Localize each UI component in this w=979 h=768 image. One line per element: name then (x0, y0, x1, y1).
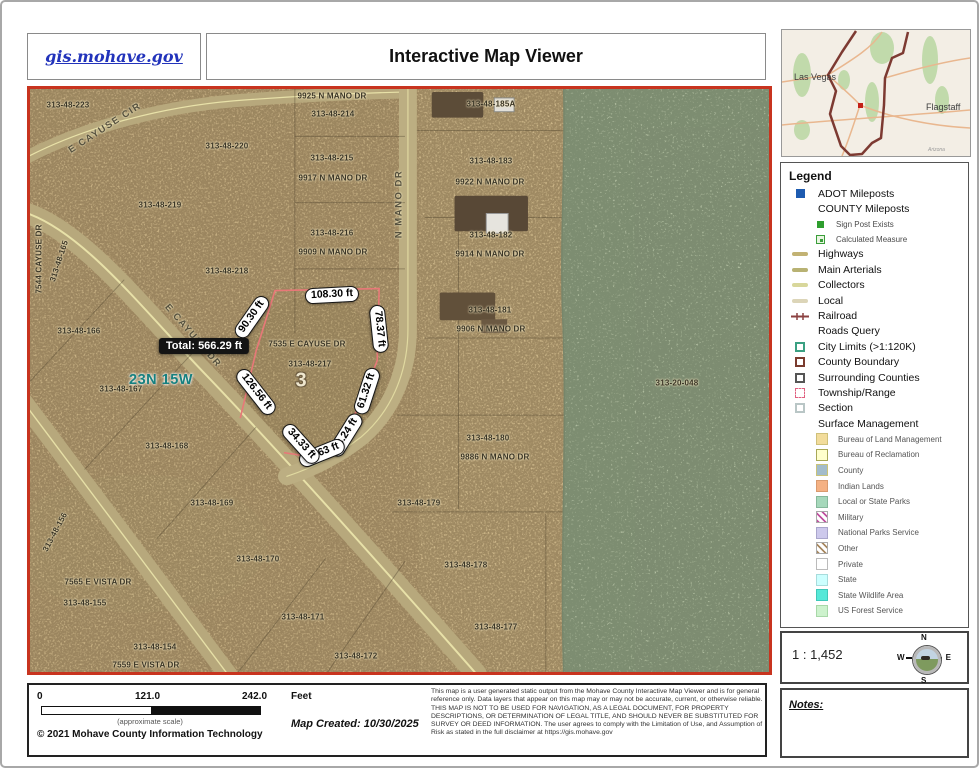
legend-item: ADOT Mileposts (787, 186, 962, 201)
parcel-label: 313-48-220 (206, 142, 249, 151)
parcel-label: 313-48-165 (48, 239, 70, 283)
parcel-label: 9914 N MANO DR (455, 250, 524, 259)
parcel-label: 313-48-177 (475, 623, 518, 632)
swatch-icon (813, 433, 831, 445)
legend-item-label: National Parks Service (838, 528, 919, 537)
square-icon (791, 189, 809, 198)
rail-icon (791, 312, 809, 321)
legend-item: US Forest Service (787, 603, 962, 619)
legend-item: Calculated Measure (787, 232, 962, 247)
parcel-label: 313-48-223 (47, 101, 90, 110)
swatch-icon (813, 589, 831, 601)
legend-item: National Parks Service (787, 525, 962, 541)
parcel-label: 313-48-219 (139, 201, 182, 210)
legend-item: Bureau of Reclamation (787, 447, 962, 463)
site-link[interactable]: gis.mohave.gov (45, 47, 183, 66)
measure-segment-label: 126.56 ft (233, 366, 279, 418)
legend-item-label: ADOT Mileposts (818, 188, 894, 200)
legend-item-label: COUNTY Mileposts (818, 203, 909, 215)
scale-ratio: 1 : 1,452 (792, 647, 843, 662)
legend-items: ADOT MilepostsCOUNTY MilepostsSign Post … (787, 186, 962, 619)
parcel-label: 313-48-183 (470, 157, 513, 166)
legend-item: Highways (787, 247, 962, 262)
parcel-label: 9922 N MANO DR (455, 178, 524, 187)
legend-item-label: Private (838, 560, 863, 569)
compass-rose-icon: N S W E (897, 634, 951, 684)
legend-title: Legend (789, 169, 962, 183)
legend-item-label: County (838, 466, 863, 475)
line-icon (791, 283, 809, 287)
legend-item-label: US Forest Service (838, 606, 903, 615)
legend-item-label: Township/Range (818, 387, 896, 399)
parcel-label: 313-48-166 (58, 327, 101, 336)
legend-item-label: Local (818, 295, 843, 307)
line-icon (791, 252, 809, 256)
notes-box: Notes: (780, 688, 969, 758)
legend-item: Township/Range (787, 385, 962, 400)
legend-item-label: Other (838, 544, 858, 553)
legend-item-label: Military (838, 513, 863, 522)
parcel-label: 313-48-215 (311, 154, 354, 163)
scalebar-tick-0: 0 (37, 691, 43, 702)
parcel-label: 313-48-155 (64, 599, 107, 608)
parcel-label: 313-48-156 (41, 511, 69, 553)
swatch-icon (813, 527, 831, 539)
township-range-label: 23N 15W (129, 372, 193, 388)
approximate-scale-note: (approximate scale) (41, 717, 259, 726)
parcel-label: 9906 N MANO DR (456, 325, 525, 334)
legend-item: County (787, 463, 962, 479)
legend-item: Local (787, 293, 962, 308)
parcel-label: 313-48-218 (206, 267, 249, 276)
outline-icon (791, 342, 809, 352)
swatch-icon (813, 464, 831, 476)
legend-item: Private (787, 556, 962, 572)
map-created-date: Map Created: 10/30/2025 (291, 718, 419, 730)
legend-item-label: Calculated Measure (836, 235, 907, 244)
parcel-label: 313-48-170 (237, 555, 280, 564)
measure-segment-label: 61.32 ft (352, 366, 382, 417)
parcel-label: 313-48-217 (289, 360, 332, 369)
legend-item-label: Indian Lands (838, 482, 884, 491)
measure-segment-label: 90.30 ft (232, 293, 273, 342)
legend-item: Roads Query (787, 324, 962, 339)
parcel-label: 7544 CAYUSE DR (35, 224, 44, 293)
legend-item: Section (787, 401, 962, 416)
section-number-label: 3 (295, 370, 306, 393)
legend-item-label: Bureau of Reclamation (838, 450, 919, 459)
legend-item: City Limits (>1:120K) (787, 339, 962, 354)
legend-panel: Legend ADOT MilepostsCOUNTY MilepostsSig… (780, 162, 969, 628)
line-icon (791, 299, 809, 303)
parcel-label: 313-48-185A (467, 100, 516, 109)
compass-w: W (897, 653, 905, 662)
legend-item-label: Collectors (818, 279, 865, 291)
square-sm-icon (811, 221, 829, 228)
legend-item: State (787, 572, 962, 588)
outline-icon (791, 357, 809, 367)
legend-item: Bureau of Land Management (787, 431, 962, 447)
location-marker (858, 103, 863, 108)
compass-e: E (946, 653, 951, 662)
parcel-label: 313-48-179 (398, 499, 441, 508)
map-frame: 313-48-223313-48-220313-48-219313-48-218… (27, 86, 772, 675)
measure-segment-label: 108.30 ft (305, 286, 360, 305)
parcel-label: 313-48-154 (134, 643, 177, 652)
stripes-icon (813, 511, 831, 523)
overview-label-arizona: Arizona (928, 147, 945, 153)
parcel-label: 313-48-168 (146, 442, 189, 451)
parcel-label: 7535 E CAYUSE DR (268, 340, 345, 349)
parcel-label: 313-48-216 (311, 229, 354, 238)
scalebar-unit: Feet (291, 691, 312, 702)
legend-item: Indian Lands (787, 478, 962, 494)
measure-segment-label: 78.37 ft (369, 304, 390, 354)
parcel-label: 313-48-171 (282, 613, 325, 622)
legend-item: Surrounding Counties (787, 370, 962, 385)
swatch-icon (813, 558, 831, 570)
outline-icon (791, 373, 809, 383)
line-icon (791, 268, 809, 272)
swatch-icon (813, 496, 831, 508)
legend-item-label: Bureau of Land Management (838, 435, 942, 444)
compass-s: S (921, 676, 926, 685)
compass-n: N (921, 633, 927, 642)
legend-item: Other (787, 541, 962, 557)
parcel-label: 9909 N MANO DR (298, 248, 367, 257)
scalebar (41, 706, 261, 715)
legend-item: Surface Management (787, 416, 962, 431)
disclaimer-text: This map is a user generated static outp… (431, 688, 763, 738)
street-label: N MANO DR (394, 170, 405, 238)
site-logo-box: gis.mohave.gov (27, 33, 201, 80)
legend-item: Military (787, 509, 962, 525)
legend-item-label: State (838, 575, 857, 584)
copyright: © 2021 Mohave County Information Technol… (37, 729, 263, 740)
swatch-icon (813, 449, 831, 461)
legend-item-label: Railroad (818, 310, 857, 322)
parcel-label: 313-48-178 (445, 561, 488, 570)
measure-total-tooltip: Total: 566.29 ft (159, 338, 249, 354)
legend-item: Main Arterials (787, 262, 962, 277)
legend-item-label: Sign Post Exists (836, 220, 894, 229)
overview-label-flagstaff: Flagstaff (926, 102, 960, 112)
parcel-label: 313-48-181 (469, 306, 512, 315)
parcel-label: 313-48-182 (470, 231, 513, 240)
parcel-label: 313-48-172 (335, 652, 378, 661)
legend-item: Collectors (787, 278, 962, 293)
legend-item: Local or State Parks (787, 494, 962, 510)
street-label: E CAYUSE DR (162, 302, 223, 370)
title-box: Interactive Map Viewer (206, 33, 766, 80)
outline-dash-icon (791, 388, 809, 398)
legend-item-label: County Boundary (818, 356, 899, 368)
parcel-label: 313-48-180 (467, 434, 510, 443)
legend-item-label: Section (818, 402, 853, 414)
legend-item: State Wildlife Area (787, 587, 962, 603)
overview-label-las-vegas: Las Vegas (794, 72, 836, 82)
footer-strip: 0 121.0 242.0 Feet (approximate scale) ©… (27, 683, 767, 757)
legend-item-label: City Limits (>1:120K) (818, 341, 916, 353)
stripes-icon (813, 542, 831, 554)
page-title: Interactive Map Viewer (389, 46, 583, 67)
legend-item: County Boundary (787, 355, 962, 370)
swatch-icon (813, 605, 831, 617)
legend-item-label: Highways (818, 248, 864, 260)
scale-ratio-box: 1 : 1,452 N S W E (780, 631, 969, 684)
swatch-icon (813, 480, 831, 492)
legend-item: COUNTY Mileposts (787, 201, 962, 216)
parcel-label: 313-48-169 (191, 499, 234, 508)
legend-item-label: Roads Query (818, 325, 880, 337)
overview-map: Las Vegas Flagstaff Arizona (781, 29, 971, 157)
swatch-icon (813, 574, 831, 586)
parcel-label: 9925 N MANO DR (297, 92, 366, 101)
overview-basemap (782, 30, 970, 156)
parcel-label: 313-20-048 (656, 379, 699, 388)
legend-item: Railroad (787, 308, 962, 323)
parcel-label: 9886 N MANO DR (460, 453, 529, 462)
legend-item-label: State Wildlife Area (838, 591, 903, 600)
legend-item-label: Local or State Parks (838, 497, 910, 506)
legend-item: Sign Post Exists (787, 217, 962, 232)
parcel-label: 313-48-214 (312, 110, 355, 119)
parcel-label: 9917 N MANO DR (298, 174, 367, 183)
legend-item-label: Surrounding Counties (818, 372, 920, 384)
legend-item-label: Main Arterials (818, 264, 882, 276)
scalebar-tick-end: 242.0 (242, 691, 267, 702)
outline-icon (791, 403, 809, 413)
legend-item-label: Surface Management (818, 418, 918, 430)
parcel-label: 7559 E VISTA DR (112, 661, 179, 670)
square-dot-icon (811, 235, 829, 244)
scalebar-tick-mid: 121.0 (135, 691, 160, 702)
parcel-label: 7565 E VISTA DR (64, 578, 131, 587)
page: gis.mohave.gov Interactive Map Viewer (0, 0, 979, 768)
notes-title: Notes: (789, 699, 823, 711)
